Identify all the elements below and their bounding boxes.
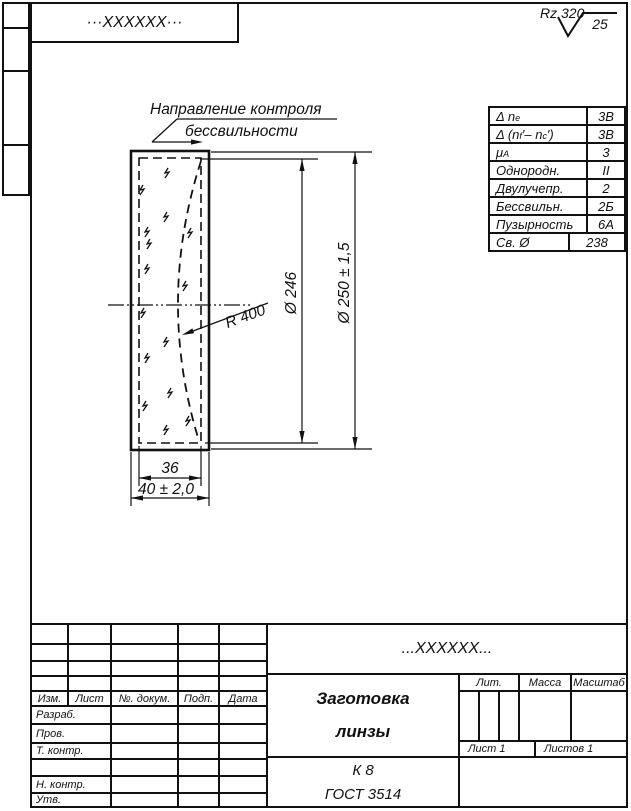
margin-box-3 — [2, 70, 30, 146]
row-label-utv: Утв. — [32, 794, 112, 806]
signature-cell — [112, 777, 179, 794]
revision-cell — [112, 662, 179, 677]
spec-value: II — [588, 163, 624, 178]
revision-cell — [69, 645, 112, 662]
revision-cell — [220, 625, 266, 645]
row-label-empty — [32, 760, 112, 777]
designation-text: ...XXXXXX... — [402, 640, 493, 658]
revision-cell — [179, 645, 220, 662]
material-box: К 8 ГОСТ 3514 — [266, 756, 460, 808]
spec-row: Бессвильн. 2Б — [488, 196, 626, 216]
col-header-list: Лист — [69, 692, 112, 705]
spec-label: Бессвильн. — [490, 198, 588, 214]
revision-cell — [32, 645, 69, 662]
revision-cell — [32, 677, 69, 690]
margin-box-1 — [2, 2, 30, 29]
spec-value: 3В — [588, 127, 624, 142]
signature-cell — [112, 707, 179, 725]
spec-label: Однородн. — [490, 162, 588, 178]
signature-cell — [220, 744, 266, 760]
signature-cell — [220, 760, 266, 777]
lit-cell-3 — [498, 690, 520, 742]
spec-label: Пузырность — [490, 216, 588, 232]
material-grade: К 8 — [352, 762, 373, 779]
spec-row: Пузырность 6А — [488, 214, 626, 234]
organization-cell — [458, 756, 628, 808]
spec-row: Однородн. II — [488, 160, 626, 180]
spec-value: 6А — [588, 217, 624, 232]
revision-cell — [179, 662, 220, 677]
row-label-prov: Пров. — [32, 725, 112, 744]
revision-cell — [220, 662, 266, 677]
revision-cell — [32, 662, 69, 677]
revision-cell — [220, 645, 266, 662]
revision-cell — [112, 645, 179, 662]
spec-row: Двулучепр. 2 — [488, 178, 626, 198]
signature-cell — [112, 744, 179, 760]
document-title-box: Заготовка линзы — [266, 673, 460, 758]
margin-box-2 — [2, 27, 30, 72]
signature-cell — [220, 725, 266, 744]
spec-row: Δ (nf′– nc′) 3В — [488, 124, 626, 144]
document-title-line1: Заготовка — [316, 689, 409, 709]
spec-label: Св. Ø — [490, 234, 570, 250]
document-title-line2: линзы — [336, 722, 390, 742]
spec-row: Δ ne 3В — [488, 106, 626, 126]
top-designation-text: ···XXXXXX··· — [87, 14, 183, 32]
scale-cell — [570, 690, 628, 742]
revision-cell — [69, 662, 112, 677]
revision-table — [30, 623, 268, 692]
spec-value: 2 — [588, 181, 624, 196]
mass-cell — [518, 690, 572, 742]
revision-cell — [32, 625, 69, 645]
col-header-data: Дата — [220, 692, 266, 705]
signature-cell — [220, 794, 266, 806]
signature-cell — [179, 760, 220, 777]
lit-cell-1 — [458, 690, 480, 742]
signature-cell — [220, 777, 266, 794]
spec-label: μA — [490, 144, 588, 160]
margin-box-4 — [2, 144, 30, 196]
revision-cell — [112, 677, 179, 690]
lit-cell-2 — [478, 690, 500, 742]
spec-label: Двулучепр. — [490, 180, 588, 196]
revision-cell — [179, 677, 220, 690]
spec-row: μA 3 — [488, 142, 626, 162]
spec-table: Δ ne 3В Δ (nf′– nc′) 3В μA 3 Однородн. I… — [488, 106, 626, 252]
signature-cell — [179, 794, 220, 806]
signature-cell — [179, 725, 220, 744]
spec-label: Δ ne — [490, 108, 588, 124]
signature-cell — [179, 777, 220, 794]
row-label-nkontr: Н. контр. — [32, 777, 112, 794]
top-designation-box: ···XXXXXX··· — [30, 2, 239, 43]
col-header-podp: Подп. — [179, 692, 220, 705]
revision-cell — [69, 625, 112, 645]
spec-value: 3 — [588, 145, 624, 160]
signature-table: Разраб. Пров. Т. контр. Н. контр. Утв. — [30, 705, 268, 808]
spec-value: 238 — [570, 235, 624, 250]
revision-cell — [69, 677, 112, 690]
designation-box: ...XXXXXX... — [266, 623, 628, 675]
spec-value: 3В — [588, 109, 624, 124]
col-header-dokum: №. докум. — [112, 692, 179, 705]
signature-cell — [112, 794, 179, 806]
material-standard: ГОСТ 3514 — [325, 786, 401, 803]
signature-cell — [112, 760, 179, 777]
spec-value: 2Б — [588, 199, 624, 214]
drawing-sheet: ···XXXXXX··· Δ ne 3В Δ (nf′– nc′) 3В μA … — [0, 0, 631, 811]
revision-cell — [179, 625, 220, 645]
col-header-izm: Изм. — [32, 692, 69, 705]
revision-cell — [112, 625, 179, 645]
row-label-tkontr: Т. контр. — [32, 744, 112, 760]
signature-cell — [179, 744, 220, 760]
spec-row: Св. Ø 238 — [488, 232, 626, 252]
revision-cell — [220, 677, 266, 690]
signature-cell — [112, 725, 179, 744]
row-label-razrab: Разраб. — [32, 707, 112, 725]
spec-label: Δ (nf′– nc′) — [490, 126, 588, 142]
signature-cell — [220, 707, 266, 725]
signature-cell — [179, 707, 220, 725]
